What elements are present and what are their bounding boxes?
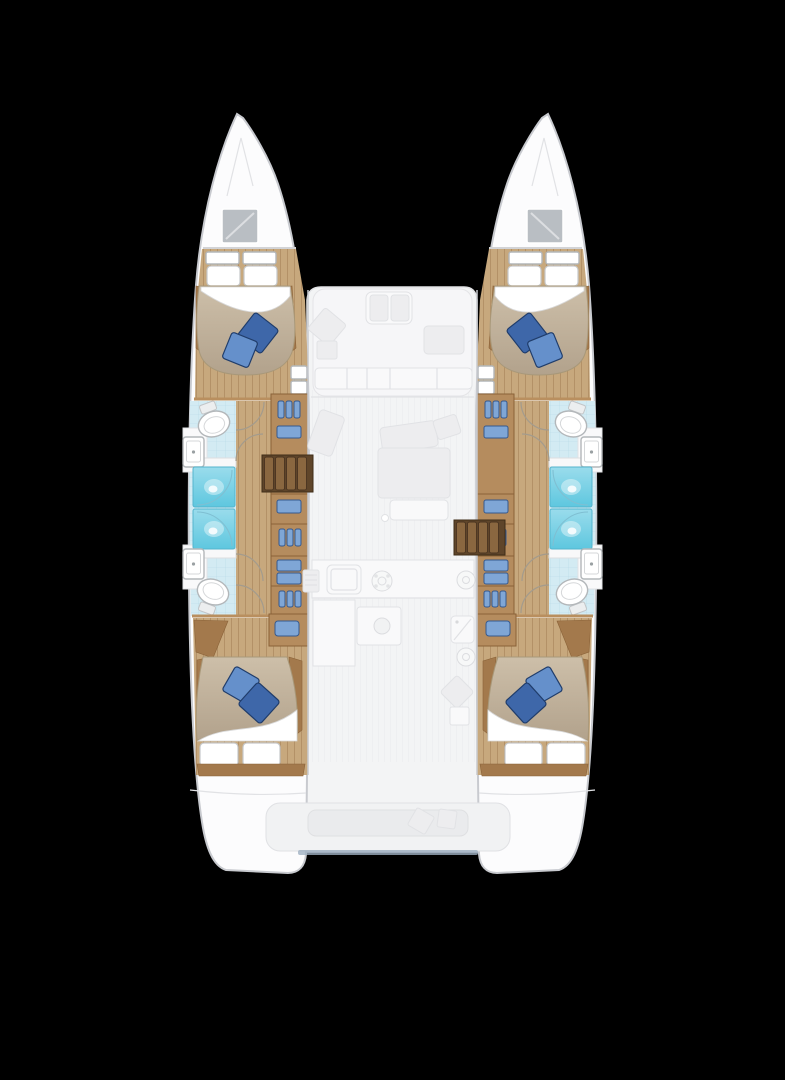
folded-linen-icon [275, 621, 299, 636]
white-pillow [243, 743, 280, 766]
wardrobe-column [271, 394, 308, 614]
island-sink-icon [374, 618, 390, 634]
white-pillow [244, 266, 277, 286]
platform-shadow [298, 850, 478, 855]
burner-icon [457, 571, 475, 589]
cushion-ghost [317, 341, 337, 359]
folded-linen-icon [277, 560, 301, 571]
hanger-icon [279, 529, 301, 546]
deck-hatch-icon [206, 252, 239, 264]
cushion-ghost [450, 707, 469, 725]
bed-footboard [197, 764, 305, 776]
icebox-ghost [451, 616, 474, 643]
folded-linen-icon [277, 573, 301, 584]
aft-cabin [193, 614, 308, 776]
bed-step [291, 381, 307, 394]
port-companionway-stairs [262, 455, 313, 492]
white-pillow [207, 266, 240, 286]
table-leg-ghost [382, 515, 389, 522]
aft-cabinet [269, 614, 308, 646]
folded-linen-icon [277, 426, 301, 438]
burner-icon [457, 648, 475, 666]
catamaran-floor-plan [0, 0, 785, 1080]
bed-step [291, 366, 307, 379]
side-lounge-ghost [424, 326, 464, 354]
front-cockpit-ghost [307, 289, 472, 396]
deck-hatch-icon [243, 252, 276, 264]
cushion-ghost [437, 809, 457, 829]
starboard-companionway-stairs [454, 520, 505, 555]
burner-icon [372, 571, 392, 591]
sofa-cushion-ghost [390, 500, 448, 520]
folded-linen-icon [277, 500, 301, 513]
forward-cabin [195, 249, 308, 399]
front-bench [315, 368, 472, 389]
shower-stall [193, 467, 235, 507]
hanger-icon [278, 401, 300, 418]
stove-ghost [303, 570, 319, 592]
hanger-icon [279, 591, 301, 607]
galley-lower-counter [313, 600, 355, 666]
saloon-table-ghost [378, 448, 450, 498]
white-pillow [200, 743, 238, 766]
sink-icon [183, 549, 204, 579]
shower-stall [193, 509, 235, 549]
sink-icon [183, 437, 204, 467]
